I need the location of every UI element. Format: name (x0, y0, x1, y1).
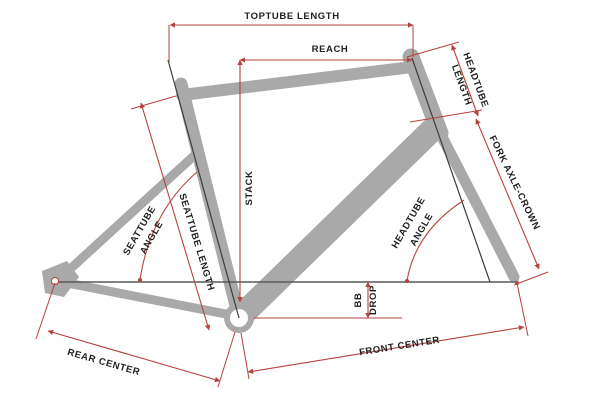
label-stack: STACK (244, 170, 255, 205)
label-toptube-length: TOPTUBE LENGTH (244, 11, 339, 22)
frame-toptube (182, 67, 412, 95)
dot-seattube-angle (138, 278, 142, 282)
dot-headtube-angle (405, 279, 409, 283)
label-fork-axle-crown: FORK AXLE-CROWN (487, 134, 542, 232)
tick-seattube-top (131, 96, 176, 109)
dim-fork-axle-crown (476, 119, 539, 269)
ext-bb-rear (218, 332, 235, 387)
label-reach: REACH (312, 44, 349, 55)
label-front-center: FRONT CENTER (358, 335, 440, 359)
geometry-drawing: TOPTUBE LENGTH REACH STACK HEADTUBE LENG… (0, 0, 600, 400)
bike-geometry-diagram: TOPTUBE LENGTH REACH STACK HEADTUBE LENG… (0, 0, 600, 400)
dot-front-axle (515, 281, 519, 285)
tick-headtube-bottom (410, 110, 482, 122)
label-rear-center: REAR CENTER (66, 347, 141, 378)
label-bb-drop-1: BB (353, 293, 364, 308)
ext-bb-front (241, 333, 249, 379)
frame-seatstay (57, 153, 197, 281)
label-bb-drop-2: DROP (368, 285, 379, 315)
bike-frame (42, 57, 514, 333)
